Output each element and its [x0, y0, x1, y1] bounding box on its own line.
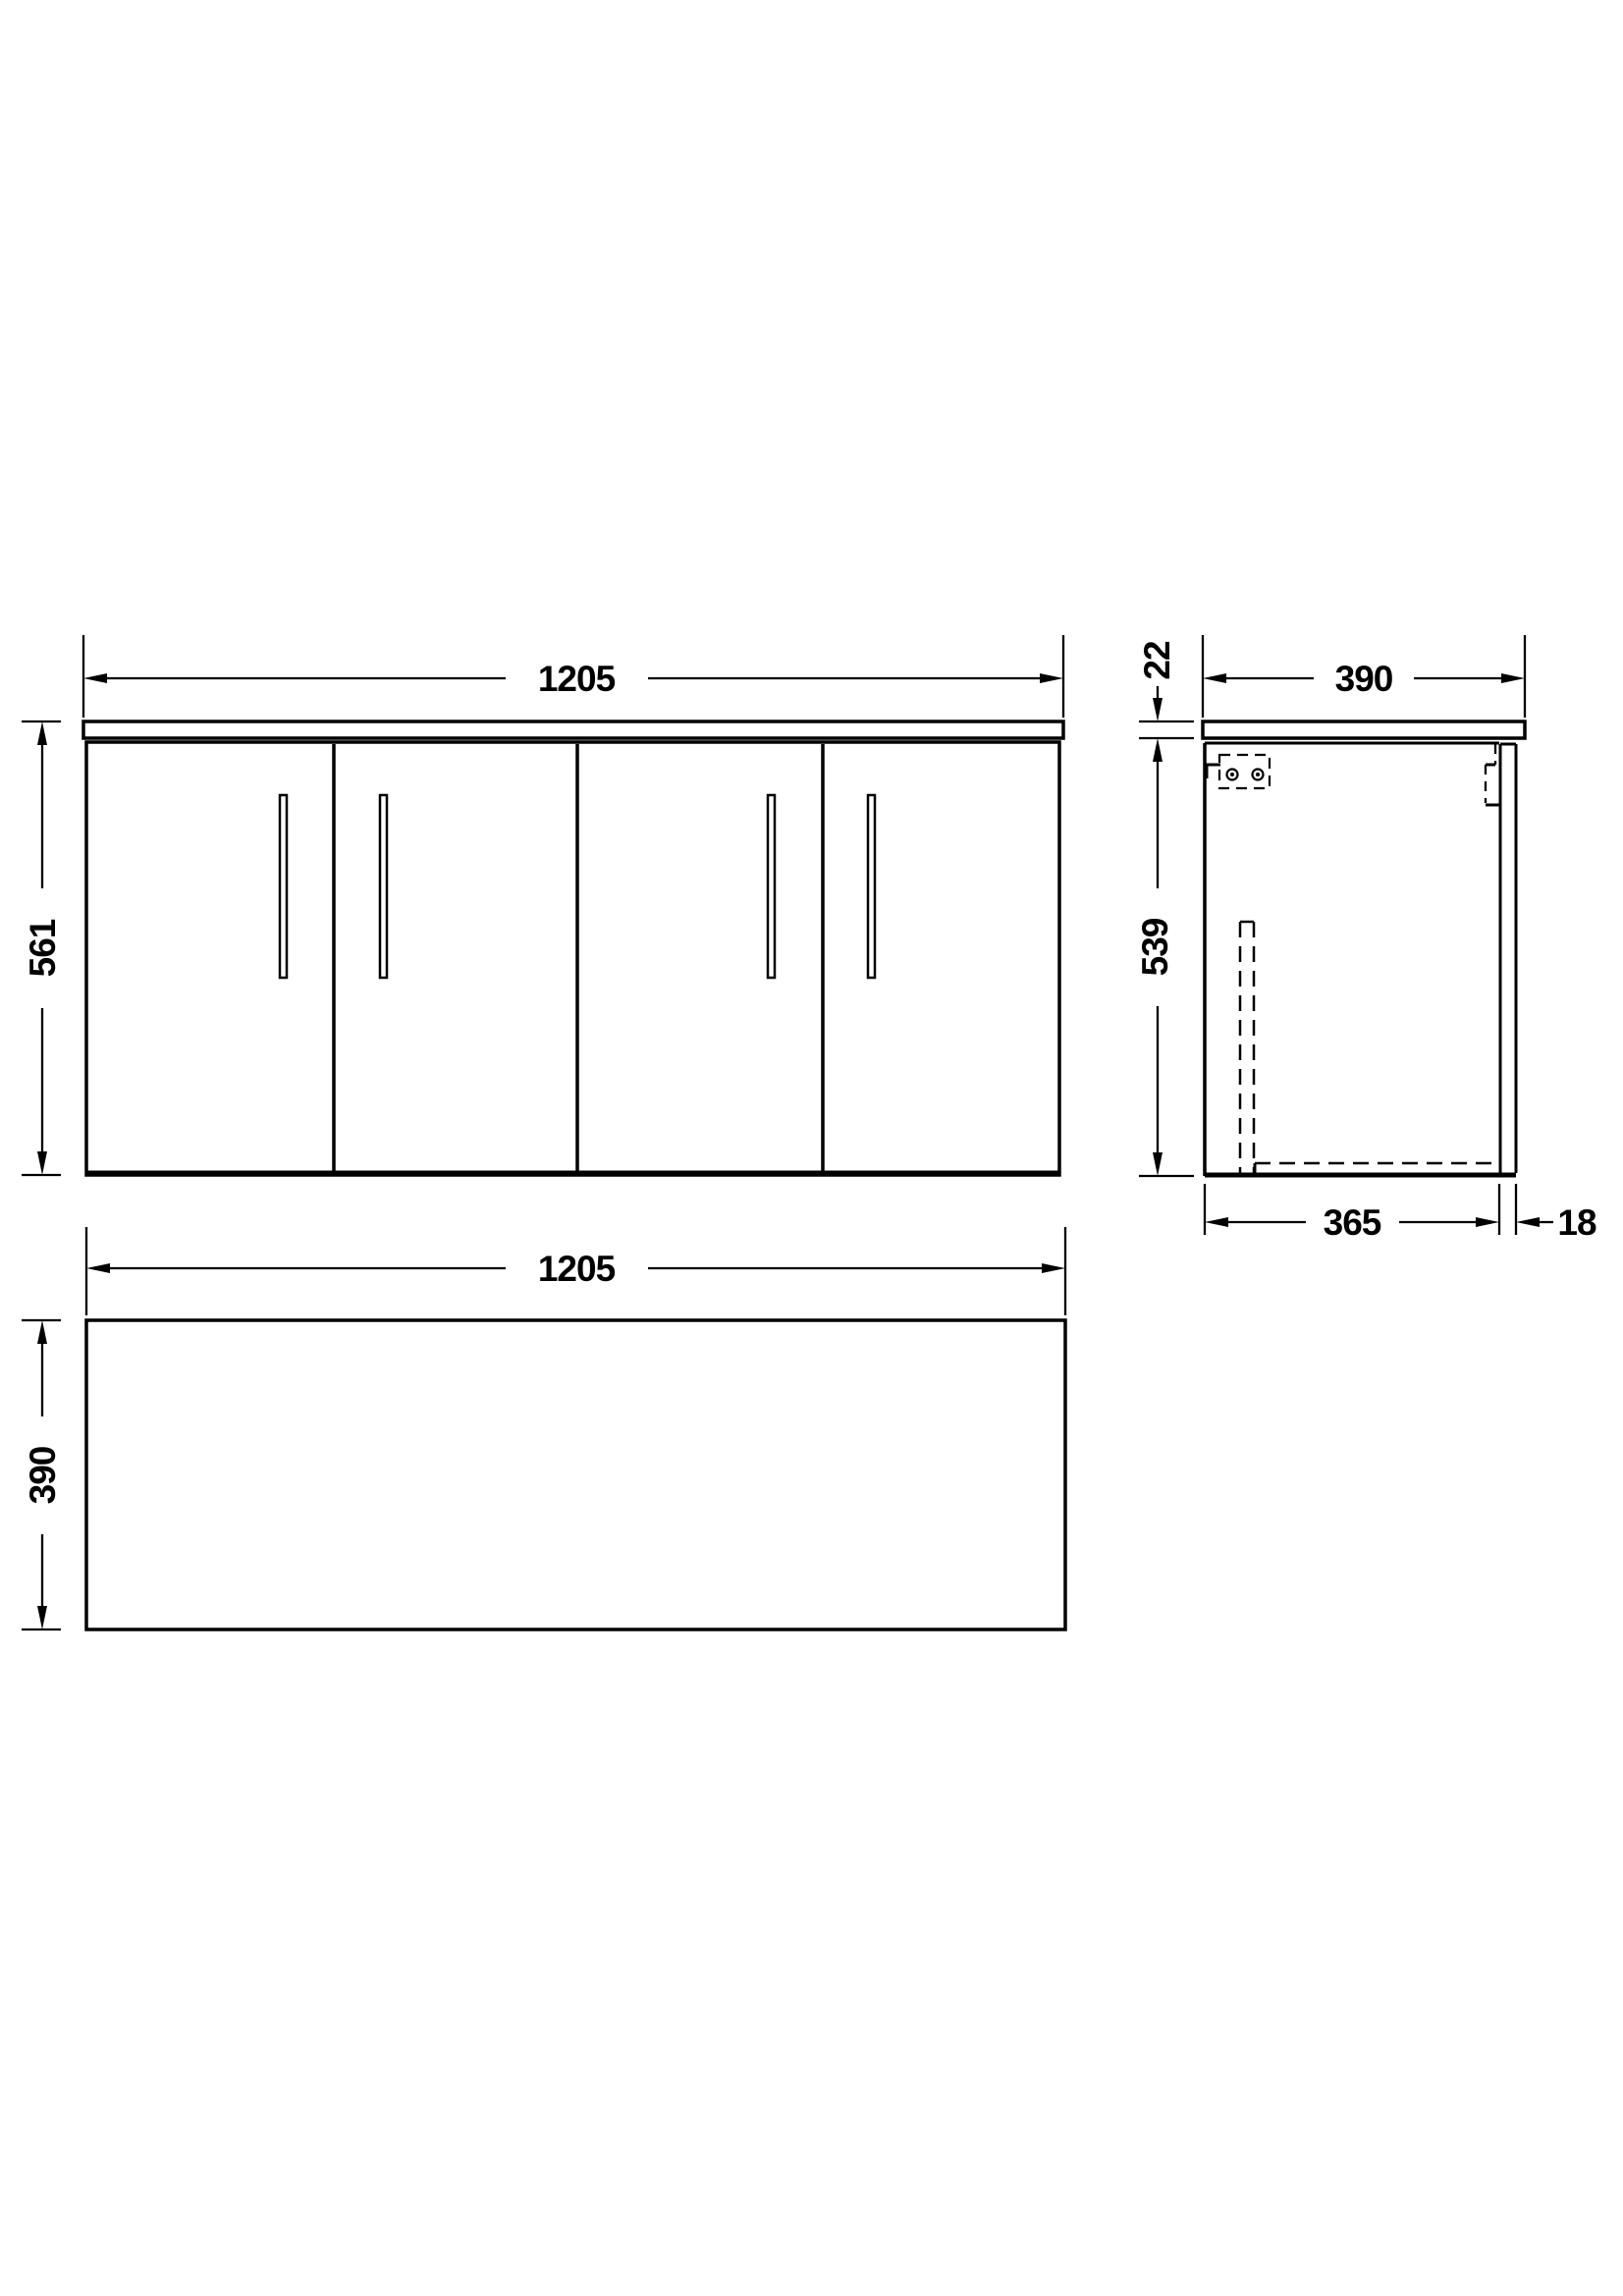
- arrowhead-up: [37, 1320, 47, 1344]
- arrowhead-right: [1476, 1217, 1499, 1227]
- front-height-label: 561: [23, 919, 63, 977]
- door-thickness-label: 18: [1557, 1202, 1596, 1243]
- cabinet-height-label: 539: [1135, 918, 1175, 976]
- hidden-bottom-panel: [1255, 1163, 1499, 1174]
- side-height-dimension: 539: [1135, 738, 1194, 1176]
- front-view: 1205 561: [22, 635, 1063, 1175]
- bracket-screw-center-2: [1256, 773, 1260, 776]
- arrowhead-left: [83, 673, 107, 683]
- arrowhead-down: [1153, 1152, 1163, 1176]
- arrowhead-right: [1042, 1263, 1065, 1273]
- front-width-label: 1205: [538, 659, 616, 699]
- wall-hanging-bracket: [1206, 755, 1270, 788]
- side-door: [1500, 744, 1516, 1173]
- door-handle-2: [380, 795, 387, 978]
- door-handle-3: [768, 795, 775, 978]
- side-view: 390 22 539: [1135, 635, 1596, 1243]
- arrowhead-down: [37, 1151, 47, 1175]
- arrowhead-right: [1040, 673, 1063, 683]
- side-carcass-depth-dimension: 365: [1205, 1184, 1499, 1243]
- arrowhead-left: [86, 1263, 110, 1273]
- arrowhead-left-outside: [1516, 1217, 1540, 1227]
- front-doors: [86, 742, 1059, 1175]
- plan-worktop-outline: [86, 1320, 1065, 1629]
- arrowhead-down: [1153, 698, 1163, 721]
- bracket-screw-center-1: [1230, 773, 1234, 776]
- arrowhead-down: [37, 1606, 47, 1629]
- plan-view: 1205 390: [22, 1227, 1065, 1629]
- side-depth-label: 390: [1335, 659, 1393, 699]
- plan-depth-label: 390: [23, 1446, 63, 1504]
- arrowhead-left: [1203, 673, 1226, 683]
- front-worktop: [83, 721, 1063, 738]
- plan-depth-dimension: 390: [22, 1320, 63, 1629]
- arrowhead-up: [37, 721, 47, 745]
- front-height-dimension: 561: [22, 721, 63, 1175]
- side-worktop: [1203, 721, 1525, 738]
- technical-drawing-page: 1205 561: [0, 0, 1623, 2296]
- side-carcass: [1205, 743, 1516, 1176]
- side-depth-dimension: 390: [1203, 635, 1525, 718]
- side-worktop-thickness-dimension: 22: [1137, 641, 1194, 738]
- arrowhead-right: [1501, 673, 1525, 683]
- carcass-depth-label: 365: [1324, 1202, 1381, 1243]
- front-width-dimension: 1205: [83, 635, 1063, 718]
- arrowhead-up: [1153, 738, 1163, 762]
- plan-width-dimension: 1205: [86, 1227, 1065, 1315]
- worktop-thickness-label: 22: [1137, 641, 1177, 680]
- door-handle-1: [280, 795, 287, 978]
- front-cabinet-outline: [86, 742, 1059, 1175]
- vanity-unit-dimension-drawing: 1205 561: [0, 0, 1623, 2296]
- door-handle-4: [868, 795, 875, 978]
- arrowhead-left: [1205, 1217, 1228, 1227]
- hidden-internal-upright: [1240, 922, 1254, 1174]
- side-door-thickness-dimension: 18: [1516, 1184, 1596, 1243]
- plan-width-label: 1205: [538, 1249, 616, 1289]
